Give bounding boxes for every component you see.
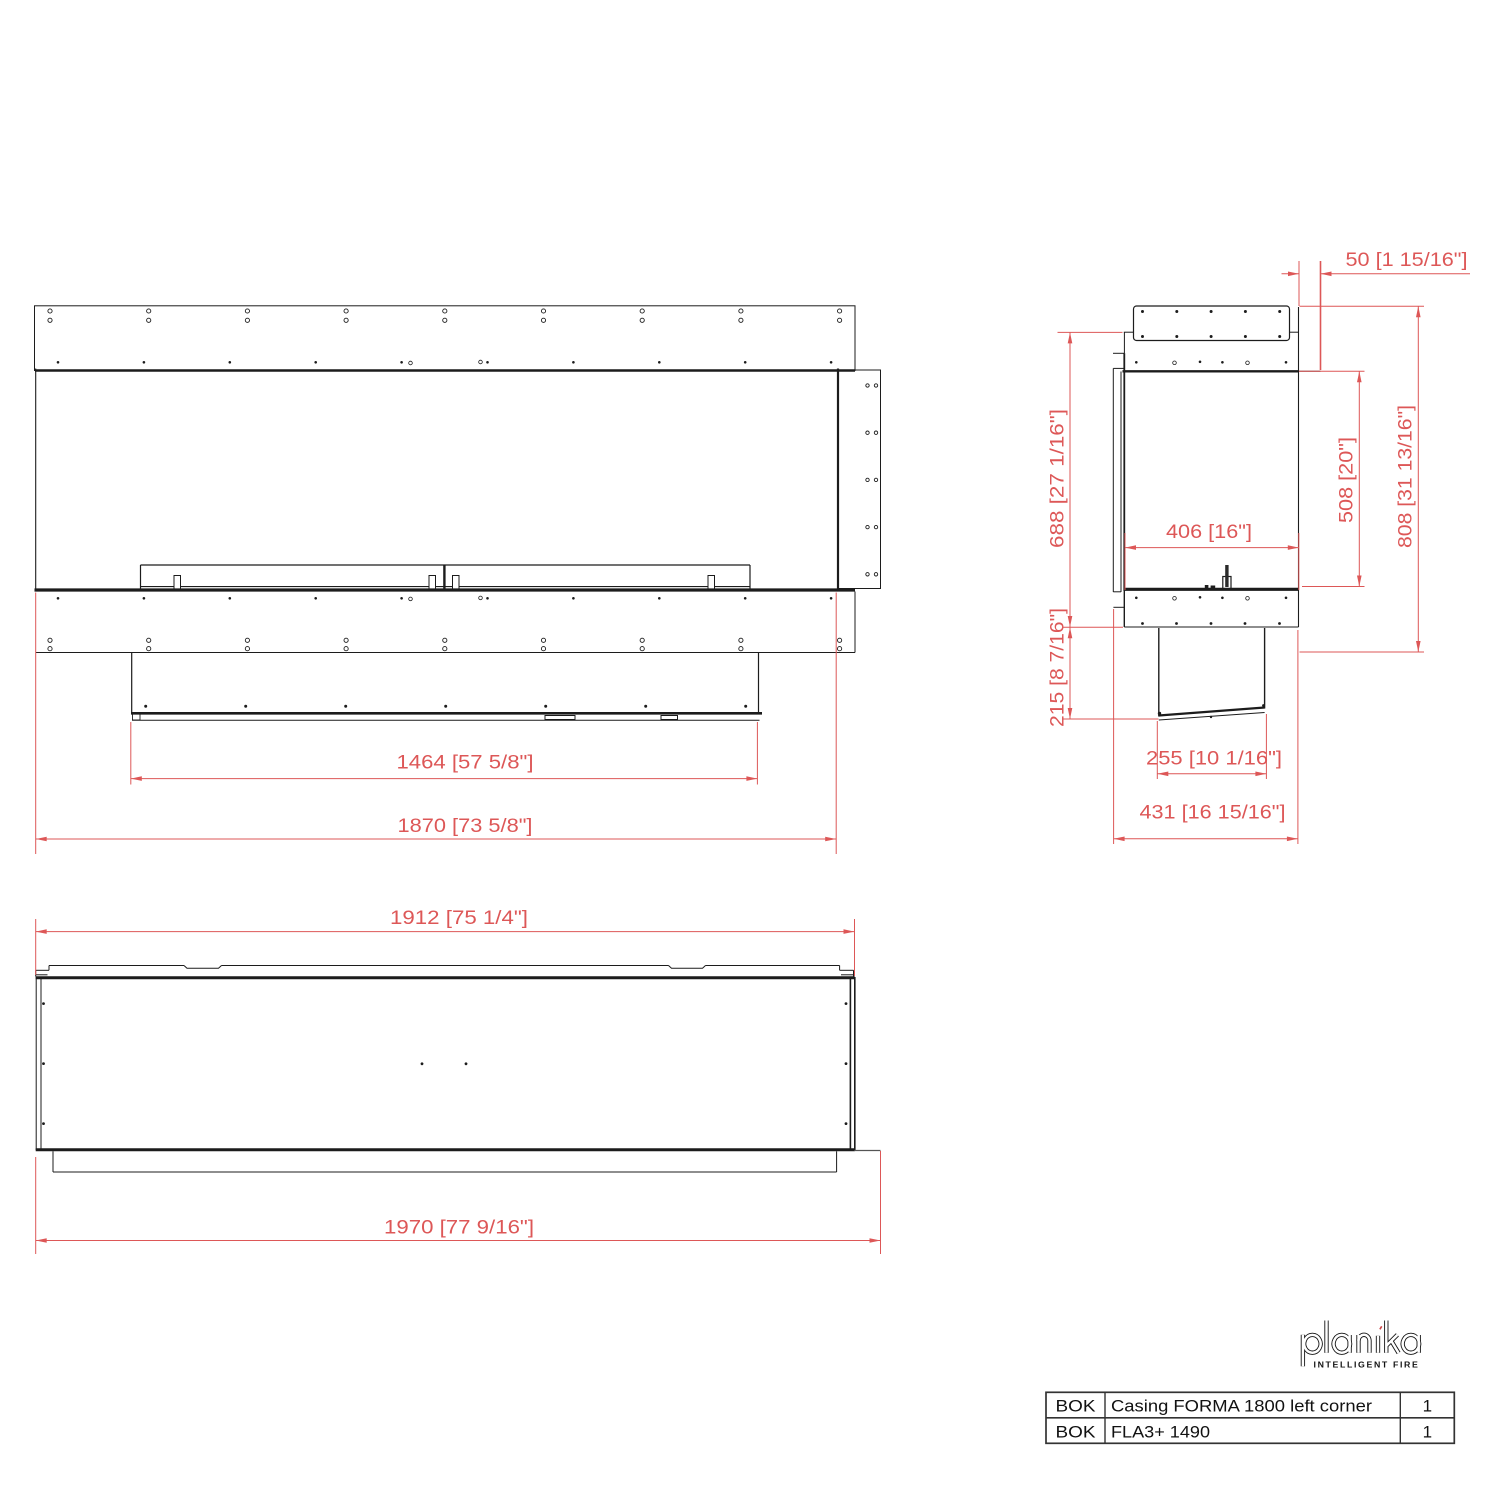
svg-text:1: 1 (1423, 1396, 1432, 1415)
svg-text:215 [8 7/16"]: 215 [8 7/16"] (1047, 608, 1069, 727)
svg-text:BOK: BOK (1056, 1396, 1097, 1415)
svg-text:Casing FORMA 1800 left corner: Casing FORMA 1800 left corner (1111, 1396, 1372, 1415)
svg-text:406 [16"]: 406 [16"] (1166, 521, 1252, 543)
svg-text:1: 1 (1423, 1422, 1432, 1441)
svg-text:1464 [57 5/8"]: 1464 [57 5/8"] (397, 752, 534, 774)
svg-text:50 [1 15/16"]: 50 [1 15/16"] (1346, 249, 1468, 271)
svg-text:1912 [75 1/4"]: 1912 [75 1/4"] (390, 907, 528, 929)
svg-text:1970 [77 9/16"]: 1970 [77 9/16"] (384, 1217, 534, 1239)
svg-text:INTELLIGENT FIRE: INTELLIGENT FIRE (1314, 1361, 1420, 1370)
svg-text:FLA3+ 1490: FLA3+ 1490 (1111, 1422, 1210, 1441)
svg-text:1870 [73 5/8"]: 1870 [73 5/8"] (398, 815, 533, 837)
svg-text:508 [20"]: 508 [20"] (1336, 437, 1358, 523)
svg-text:688 [27 1/16"]: 688 [27 1/16"] (1047, 409, 1069, 548)
svg-text:255 [10 1/16"]: 255 [10 1/16"] (1146, 748, 1282, 770)
svg-text:808 [31 13/16"]: 808 [31 13/16"] (1395, 405, 1417, 548)
svg-text:431 [16 15/16"]: 431 [16 15/16"] (1140, 802, 1286, 824)
svg-text:BOK: BOK (1056, 1422, 1097, 1441)
